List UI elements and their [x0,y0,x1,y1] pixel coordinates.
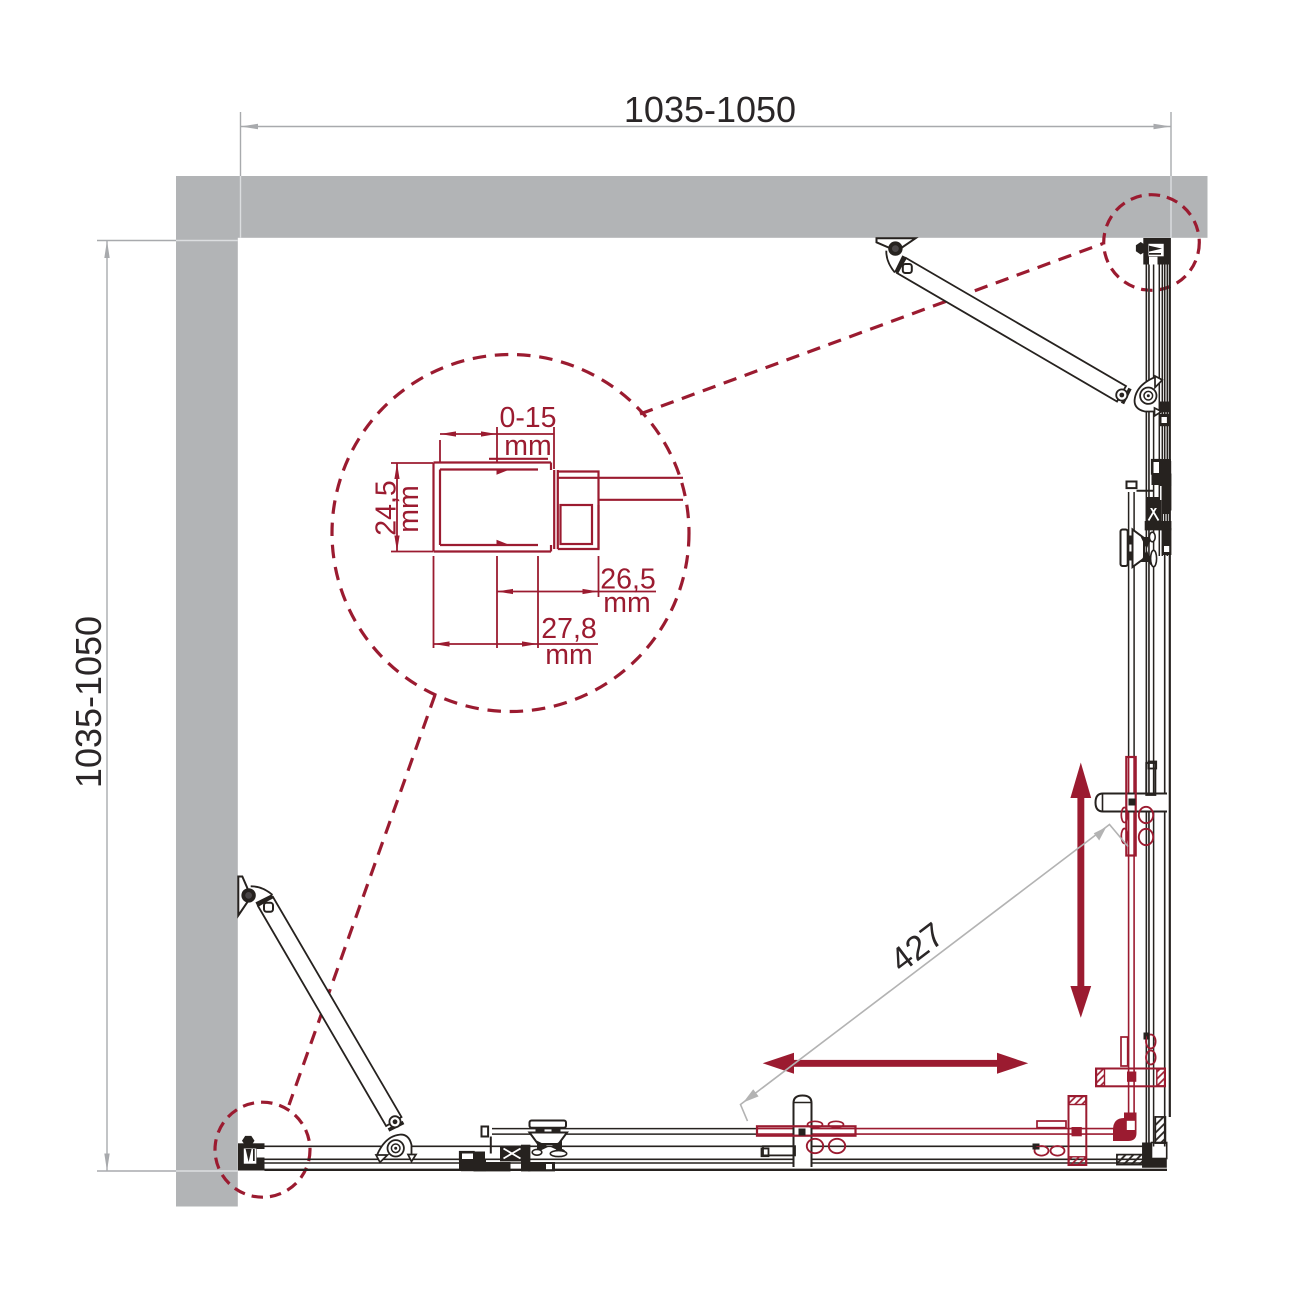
svg-text:427: 427 [883,915,951,980]
svg-text:1035-1050: 1035-1050 [68,616,109,788]
svg-text:mm: mm [393,485,425,532]
svg-text:mm: mm [504,430,551,462]
svg-text:mm: mm [603,587,650,619]
svg-text:1035-1050: 1035-1050 [624,89,796,130]
svg-text:mm: mm [545,639,592,671]
